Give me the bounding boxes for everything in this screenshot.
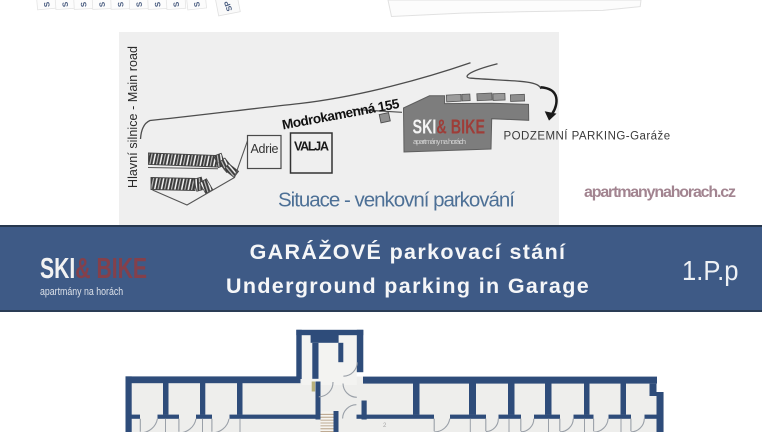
svg-text:S: S <box>116 2 125 8</box>
svg-text:PODZEMNÍ PARKING-Garáže: PODZEMNÍ PARKING-Garáže <box>504 130 671 143</box>
svg-text:apartmanynahorach.cz: apartmanynahorach.cz <box>584 184 736 201</box>
svg-text:Situace - venkovní parkování: Situace - venkovní parkování <box>278 189 515 212</box>
svg-text:S: S <box>135 2 144 8</box>
svg-text:S: S <box>61 1 70 7</box>
svg-text:apartmány na horách: apartmány na horách <box>413 137 466 146</box>
svg-text:S: S <box>98 1 107 7</box>
svg-text:Adrie: Adrie <box>251 142 279 156</box>
svg-text:S: S <box>42 1 52 7</box>
svg-text:S: S <box>79 1 88 7</box>
svg-text:S: S <box>153 1 162 7</box>
svg-text:Hlavní silnice - Main road: Hlavní silnice - Main road <box>126 46 140 188</box>
svg-text:VALJA: VALJA <box>294 140 329 154</box>
svg-text:SKI& BIKE: SKI& BIKE <box>413 115 486 138</box>
svg-text:S: S <box>172 1 181 7</box>
